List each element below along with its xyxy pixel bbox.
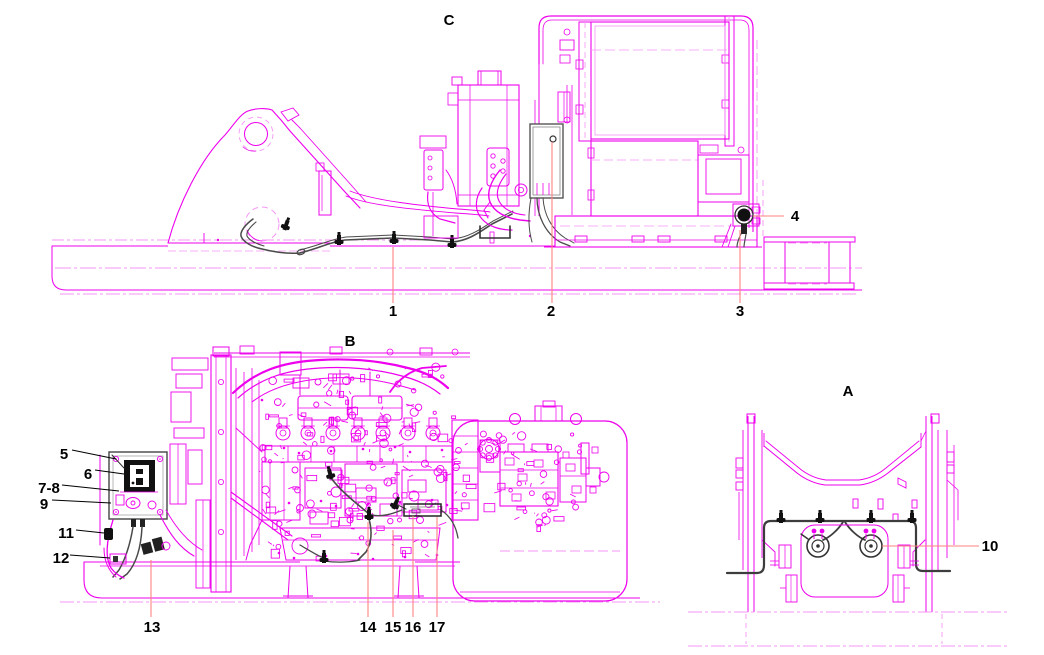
svg-text:11: 11 xyxy=(58,525,74,542)
svg-text:5: 5 xyxy=(60,446,68,463)
svg-text:13: 13 xyxy=(144,619,161,636)
svg-text:7-8: 7-8 xyxy=(38,480,60,497)
svg-text:A: A xyxy=(843,383,854,400)
svg-text:4: 4 xyxy=(791,208,800,225)
svg-text:15: 15 xyxy=(385,619,402,636)
svg-text:16: 16 xyxy=(405,619,422,636)
svg-text:17: 17 xyxy=(429,619,446,636)
svg-text:9: 9 xyxy=(40,496,48,513)
svg-text:6: 6 xyxy=(84,466,92,483)
svg-text:C: C xyxy=(444,12,455,29)
svg-text:12: 12 xyxy=(53,550,70,567)
svg-text:10: 10 xyxy=(982,538,999,555)
svg-text:1: 1 xyxy=(389,303,397,320)
svg-text:14: 14 xyxy=(360,619,377,636)
svg-text:3: 3 xyxy=(736,303,744,320)
svg-text:B: B xyxy=(345,333,356,350)
svg-text:2: 2 xyxy=(547,303,555,320)
